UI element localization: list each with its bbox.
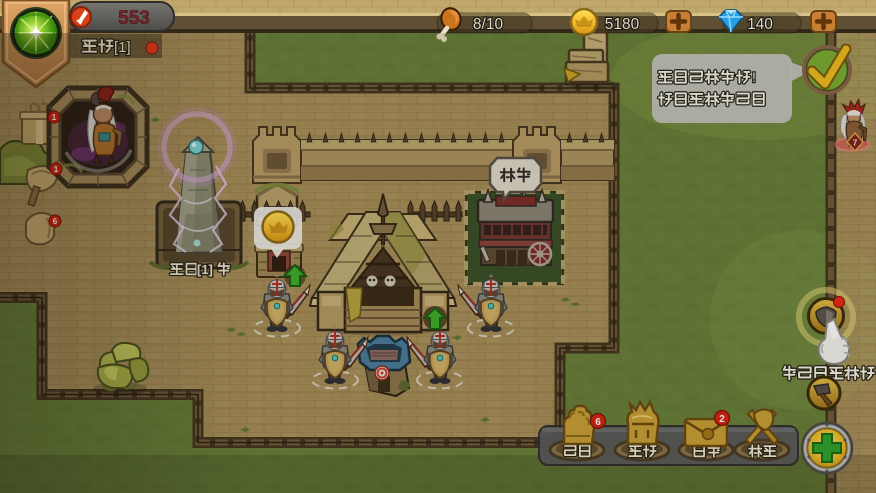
svg-text:140: 140	[747, 16, 773, 33]
svg-text:5180: 5180	[605, 16, 640, 33]
svg-text:553: 553	[118, 8, 150, 29]
svg-text:8/10: 8/10	[473, 16, 504, 33]
